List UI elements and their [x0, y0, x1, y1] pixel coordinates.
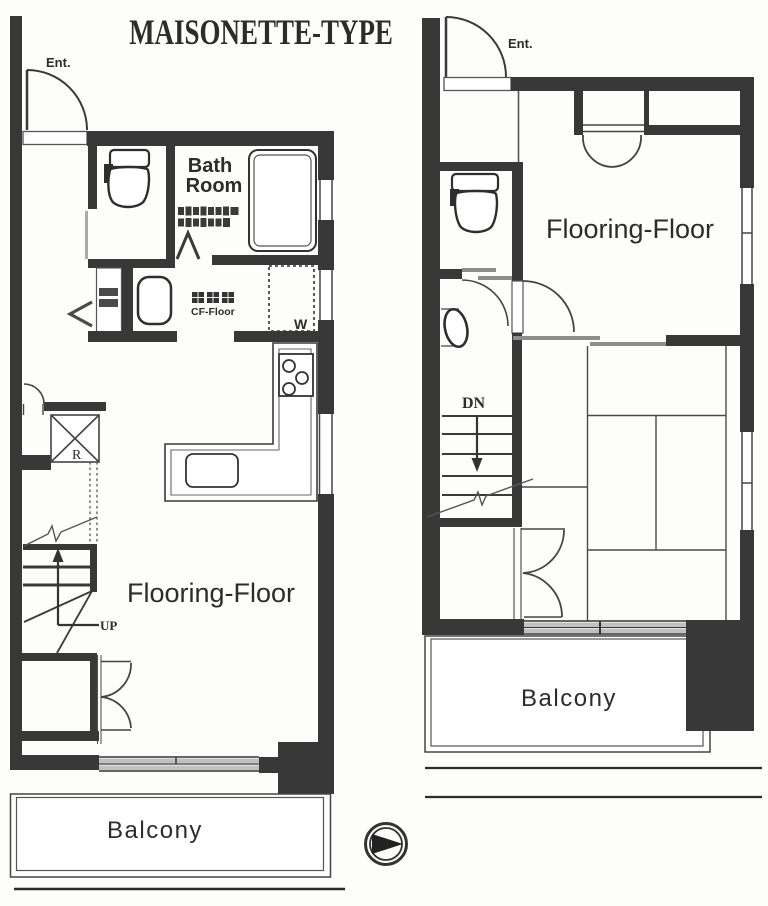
svg-text:Ent.: Ent. — [508, 36, 533, 51]
svg-text:Bath: Bath — [188, 155, 232, 177]
svg-text:Flooring-Floor: Flooring-Floor — [127, 578, 295, 608]
svg-text:Balcony: Balcony — [521, 685, 617, 712]
svg-text:Balcony: Balcony — [107, 817, 203, 844]
svg-text:MAISONETTE-TYPE: MAISONETTE-TYPE — [129, 12, 393, 52]
svg-text:Flooring-Floor: Flooring-Floor — [546, 214, 714, 244]
svg-text:Room: Room — [186, 175, 243, 197]
svg-text:CF-Floor: CF-Floor — [191, 306, 235, 318]
svg-text:Ent.: Ent. — [46, 55, 71, 70]
svg-text:UP: UP — [100, 618, 117, 633]
svg-text:R: R — [72, 448, 82, 463]
svg-text:W: W — [294, 316, 308, 332]
svg-text:DN: DN — [462, 395, 486, 412]
